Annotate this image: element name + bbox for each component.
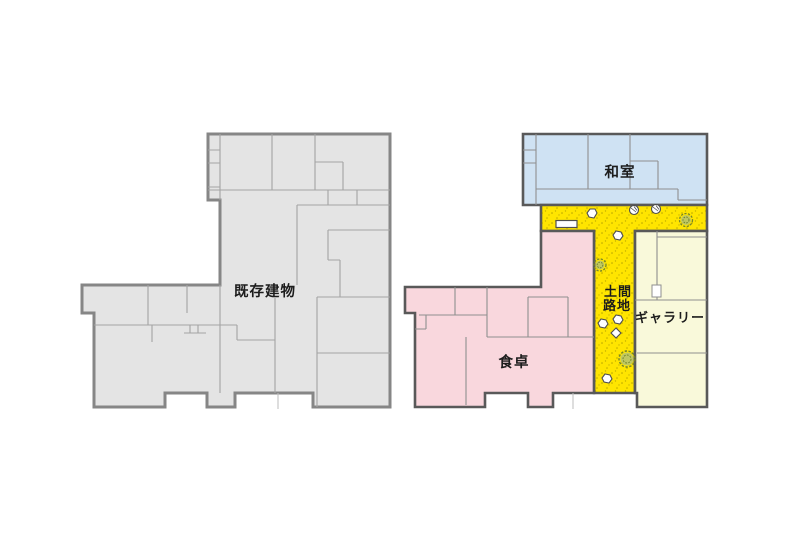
floor-plan-figure: 既存建物 [0,0,800,541]
label-gallery: ギャラリー [635,310,705,325]
label-existing-building: 既存建物 [234,282,296,300]
planter-icon [652,205,661,214]
label-washitsu: 和室 [605,163,636,181]
stone-icon [598,319,608,328]
planter-icon [630,206,639,215]
room-existing-building [82,134,390,407]
renovated-plan: 和室 土間 路地 ギャラリー 食卓 [405,134,707,409]
label-doma-line2: 路地 [603,298,631,313]
stone-icon [602,374,612,383]
stone-icon [613,231,623,240]
floor-plan-canvas: 既存建物 [0,0,800,541]
door-icon [652,285,661,297]
label-dining: 食卓 [499,353,530,371]
label-doma-line1: 土間 [604,284,632,299]
room-dining [405,231,594,407]
existing-building-plan: 既存建物 [82,134,390,409]
stone-icon [613,315,623,324]
bench-icon [556,221,577,228]
